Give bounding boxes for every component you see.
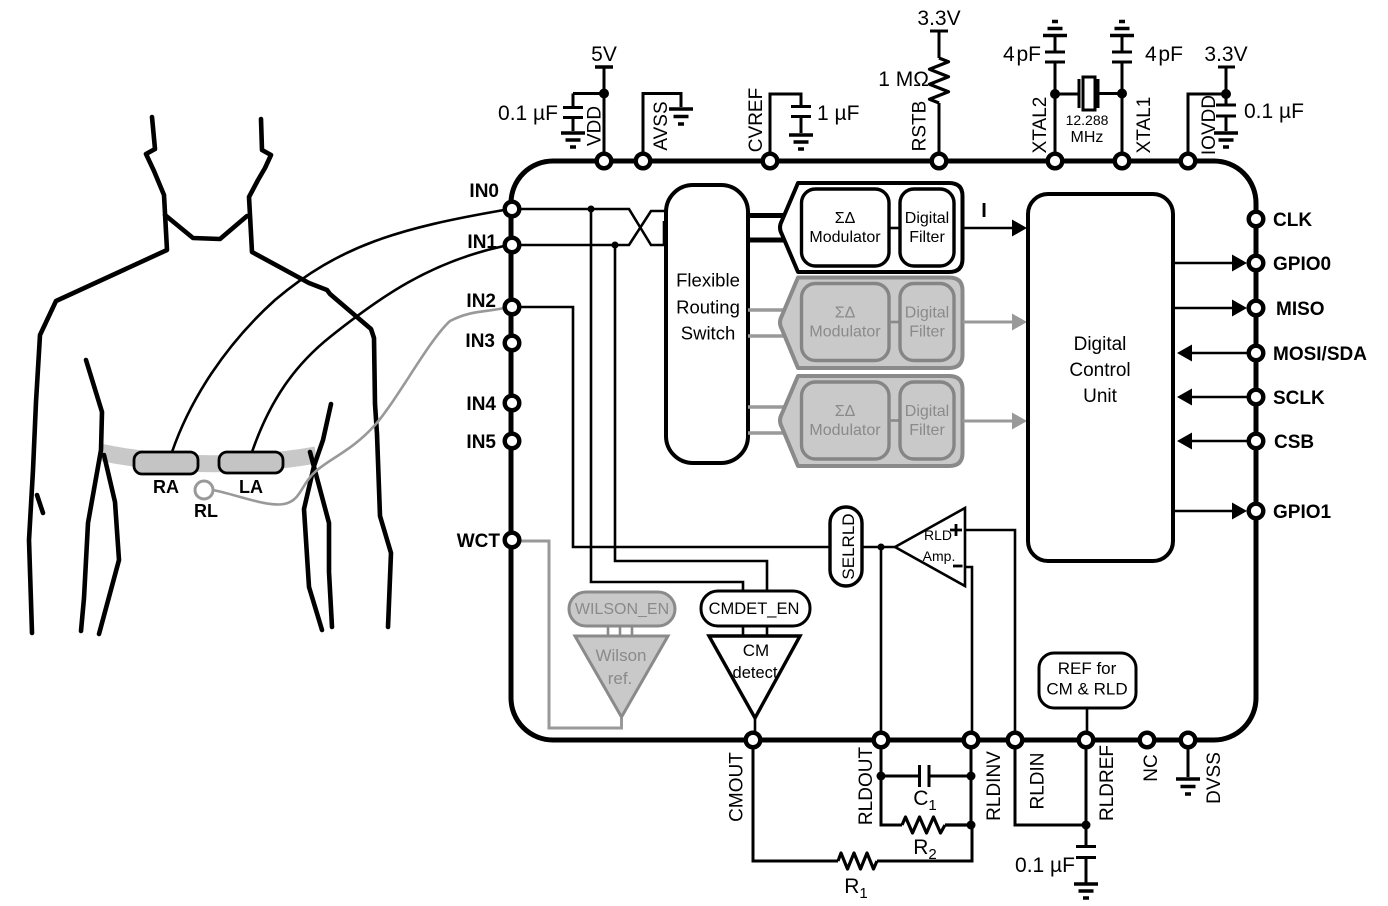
svg-text:SELRLD: SELRLD xyxy=(839,513,858,579)
svg-text:3.3V: 3.3V xyxy=(1204,43,1247,66)
svg-text:ΣΔ: ΣΔ xyxy=(835,305,856,322)
svg-text:REF for: REF for xyxy=(1058,659,1117,678)
svg-text:IN3: IN3 xyxy=(465,331,495,352)
svg-text:Modulator: Modulator xyxy=(809,324,881,341)
svg-text:RL: RL xyxy=(194,501,218,521)
svg-text:MHz: MHz xyxy=(1071,129,1104,146)
svg-text:Control: Control xyxy=(1069,360,1130,381)
svg-text:1 µF: 1 µF xyxy=(817,102,859,125)
svg-text:4 pF: 4 pF xyxy=(1003,43,1041,66)
svg-text:Digital: Digital xyxy=(905,305,949,322)
svg-text:GPIO0: GPIO0 xyxy=(1273,254,1331,275)
svg-text:CSB: CSB xyxy=(1274,432,1314,453)
svg-text:Routing: Routing xyxy=(676,297,740,318)
svg-text:CMOUT: CMOUT xyxy=(727,752,748,822)
svg-text:RLDIN: RLDIN xyxy=(1028,752,1049,809)
svg-text:ref.: ref. xyxy=(608,669,633,688)
svg-text:IN2: IN2 xyxy=(466,291,496,312)
svg-text:Filter: Filter xyxy=(909,229,945,246)
svg-text:XTAL1: XTAL1 xyxy=(1134,97,1155,154)
svg-text:12.288: 12.288 xyxy=(1066,112,1109,128)
svg-text:4 pF: 4 pF xyxy=(1145,43,1183,66)
svg-text:Digital: Digital xyxy=(905,403,949,420)
svg-text:CVREF: CVREF xyxy=(746,88,767,152)
svg-text:CM & RLD: CM & RLD xyxy=(1046,680,1127,699)
svg-text:CMDET_EN: CMDET_EN xyxy=(709,600,800,618)
svg-text:IN0: IN0 xyxy=(469,181,499,202)
svg-text:RLDINV: RLDINV xyxy=(984,751,1005,821)
svg-text:AVSS: AVSS xyxy=(651,101,672,150)
svg-text:IN1: IN1 xyxy=(467,232,497,253)
svg-text:IN4: IN4 xyxy=(466,394,496,415)
svg-text:Unit: Unit xyxy=(1083,386,1118,407)
svg-text:Wilson: Wilson xyxy=(595,646,646,665)
svg-text:Switch: Switch xyxy=(681,323,736,344)
svg-text:NC: NC xyxy=(1141,754,1162,781)
svg-text:IN5: IN5 xyxy=(466,432,496,453)
svg-text:ΣΔ: ΣΔ xyxy=(835,403,856,420)
svg-text:Modulator: Modulator xyxy=(809,422,881,439)
svg-text:VDD: VDD xyxy=(585,106,606,146)
svg-text:Filter: Filter xyxy=(909,422,945,439)
svg-text:CM: CM xyxy=(743,641,769,660)
svg-text:DVSS: DVSS xyxy=(1204,752,1225,804)
svg-text:Digital: Digital xyxy=(905,210,949,227)
svg-text:RLDOUT: RLDOUT xyxy=(856,747,877,826)
svg-text:RA: RA xyxy=(153,477,179,497)
svg-text:I: I xyxy=(981,200,987,222)
svg-text:MISO: MISO xyxy=(1276,299,1325,320)
svg-text:5V: 5V xyxy=(591,43,617,66)
svg-text:0.1 µF: 0.1 µF xyxy=(1244,100,1304,123)
svg-text:WCT: WCT xyxy=(457,531,501,552)
svg-text:Digital: Digital xyxy=(1074,334,1127,355)
svg-text:Filter: Filter xyxy=(909,324,945,341)
svg-text:RLD: RLD xyxy=(924,527,952,543)
svg-text:SCLK: SCLK xyxy=(1273,388,1325,409)
svg-text:LA: LA xyxy=(239,477,263,497)
svg-text:CLK: CLK xyxy=(1273,210,1312,231)
svg-text:0.1 µF: 0.1 µF xyxy=(498,102,558,125)
svg-text:Flexible: Flexible xyxy=(676,270,740,291)
svg-text:0.1 µF: 0.1 µF xyxy=(1015,854,1075,877)
svg-text:1 MΩ: 1 MΩ xyxy=(878,68,929,91)
svg-text:detect: detect xyxy=(733,664,778,682)
svg-text:RLDREF: RLDREF xyxy=(1097,745,1118,821)
svg-text:Modulator: Modulator xyxy=(809,229,881,246)
svg-text:ΣΔ: ΣΔ xyxy=(835,210,856,227)
svg-text:XTAL2: XTAL2 xyxy=(1030,97,1051,154)
svg-text:IOVDD: IOVDD xyxy=(1199,95,1220,155)
svg-text:WILSON_EN: WILSON_EN xyxy=(575,601,669,618)
svg-text:RSTB: RSTB xyxy=(910,101,931,152)
svg-text:GPIO1: GPIO1 xyxy=(1273,502,1332,523)
svg-text:Amp.: Amp. xyxy=(923,548,956,564)
svg-text:MOSI/SDA: MOSI/SDA xyxy=(1273,344,1367,365)
svg-text:3.3V: 3.3V xyxy=(917,7,960,30)
